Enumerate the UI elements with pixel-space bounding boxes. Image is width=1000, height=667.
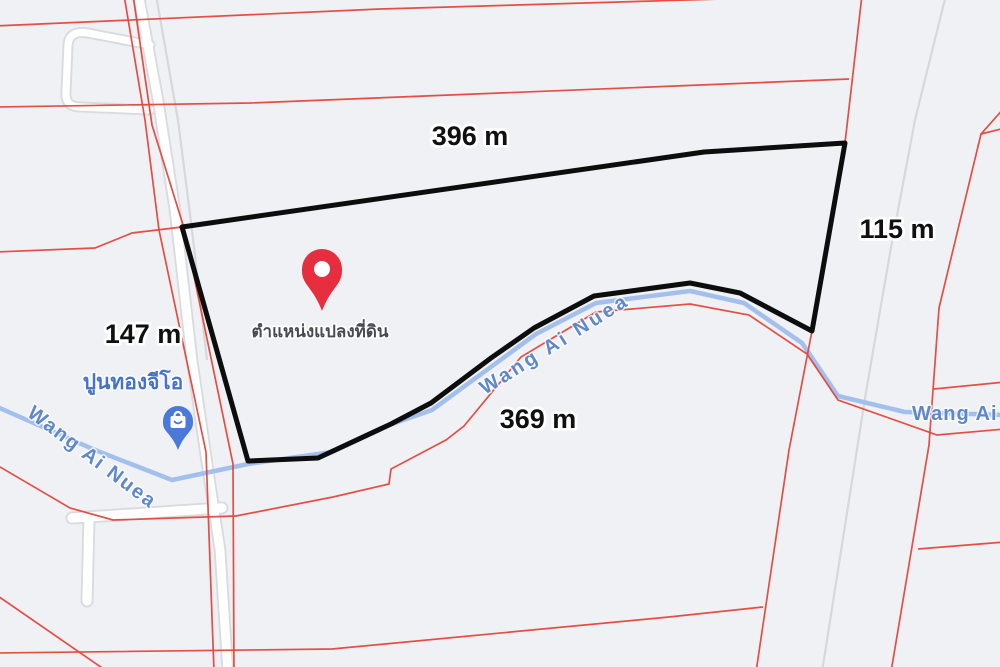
field-track <box>822 0 946 667</box>
parcel-pin-caption: ตำแหน่งแปลงที่ดิน <box>251 319 388 341</box>
map-pin-icon <box>302 249 342 311</box>
map-canvas[interactable]: Wang Ai Nuea Wang Ai Nuea Wang Ai Nuea 3… <box>0 0 1000 667</box>
distance-label-top: 396 m <box>432 121 509 151</box>
poi-marker-shopping[interactable]: ปูนทองจีโอ <box>83 369 193 450</box>
distance-label-left: 147 m <box>105 319 182 349</box>
branch-road2 <box>87 519 89 601</box>
map-viewport[interactable]: Wang Ai Nuea Wang Ai Nuea Wang Ai Nuea 3… <box>0 0 1000 667</box>
stream-label-right: Wang Ai Nuea <box>912 403 1000 425</box>
distance-label-right: 115 m <box>859 214 934 244</box>
distance-label-bottom: 369 m <box>500 404 577 434</box>
poi-label: ปูนทองจีโอ <box>83 369 184 396</box>
road-network <box>66 0 946 667</box>
stream-label-left: Wang Ai Nuea <box>23 402 160 513</box>
stream-label-middle: Wang Ai Nuea <box>476 291 632 400</box>
map-pin-hole <box>314 261 330 277</box>
parcel-location-pin[interactable]: ตำแหน่งแปลงที่ดิน <box>251 249 388 341</box>
